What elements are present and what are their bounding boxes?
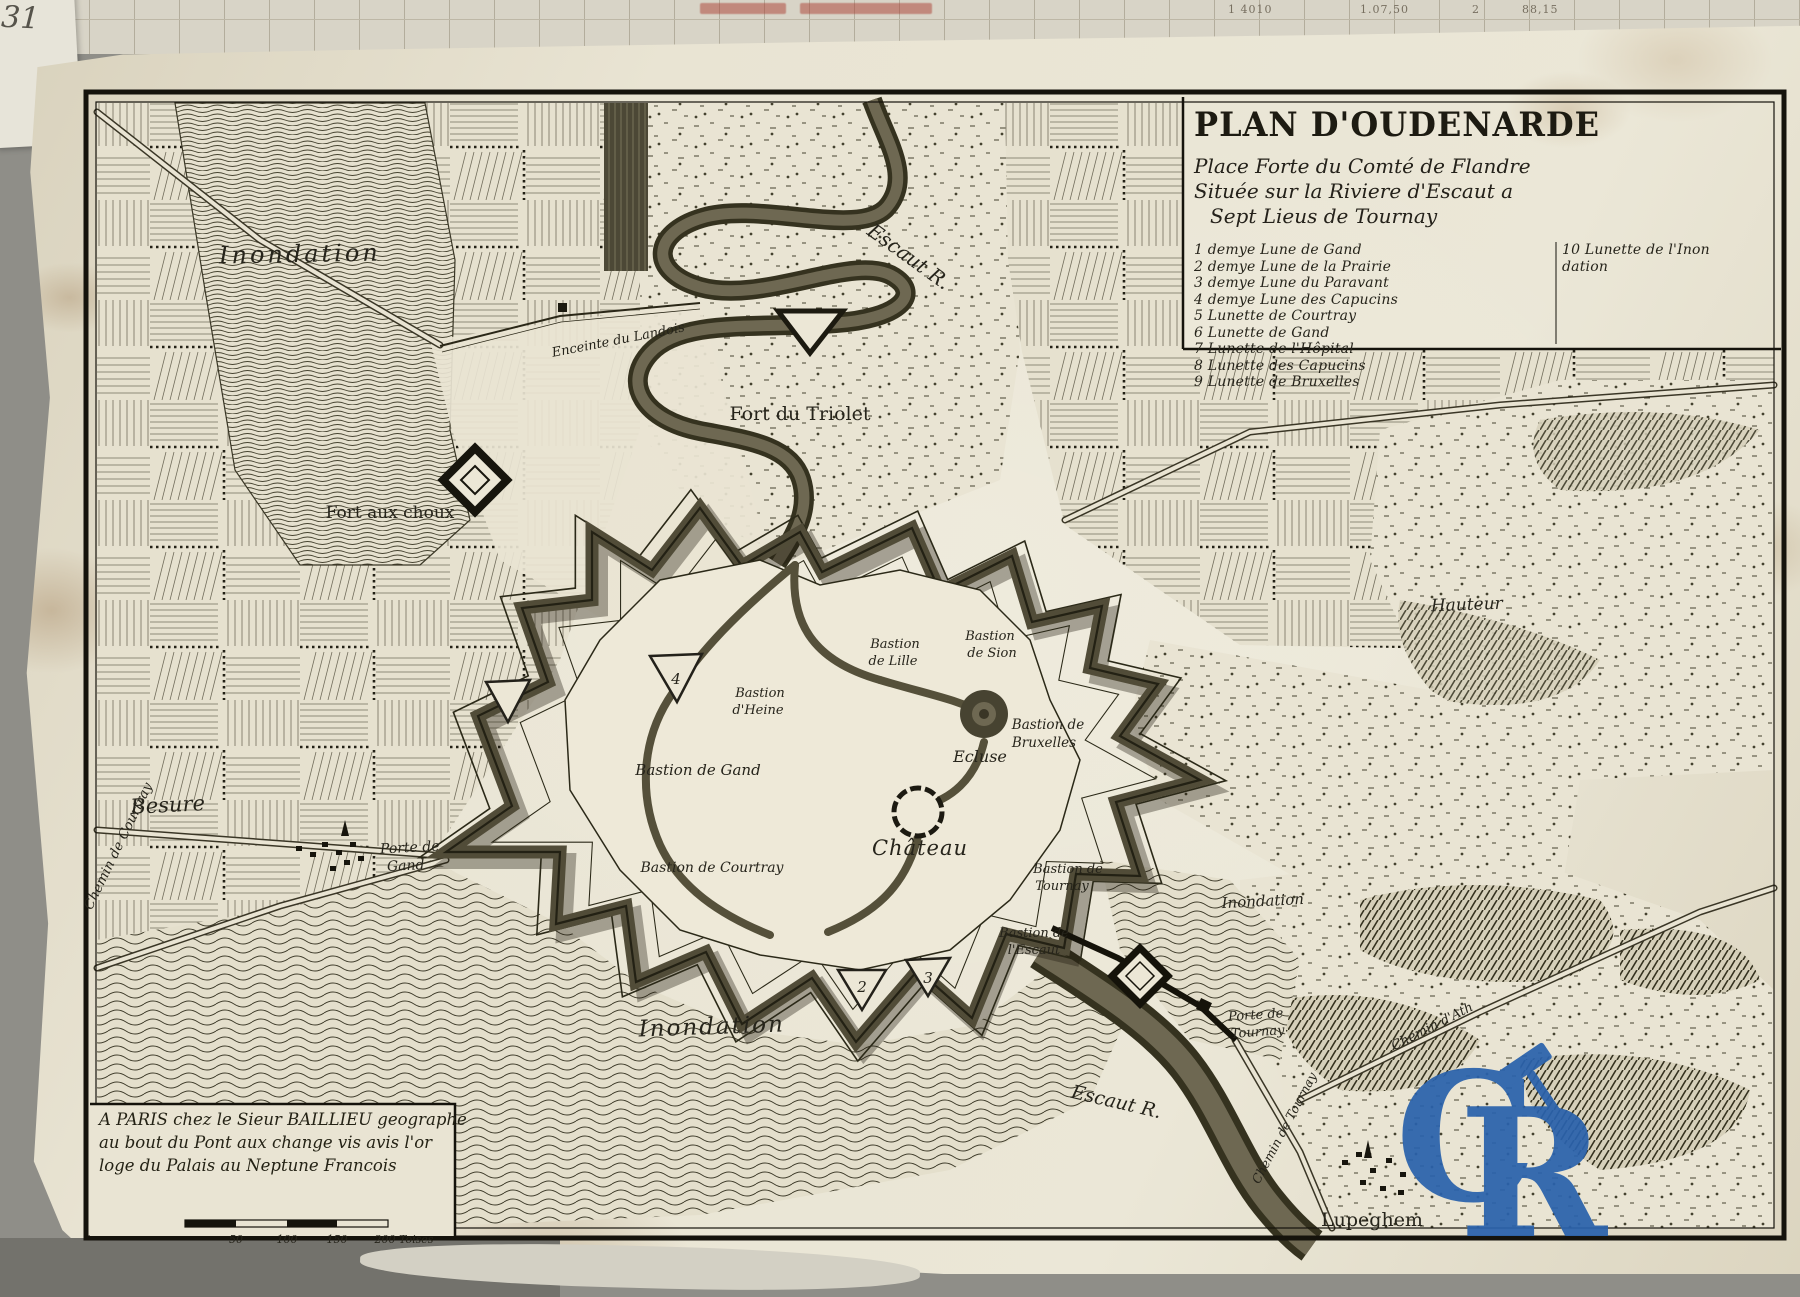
title-cartouche: PLAN D'OUDENARDE Place Forte du Comté de… bbox=[1194, 104, 1778, 391]
photo-of-antique-map: 1 4010 1.07,50 2 88,15 31 bbox=[0, 0, 1800, 1297]
label-bastion-de-sion: de Sion bbox=[967, 646, 1016, 661]
label-fort-aux-choux: Fort aux choux bbox=[326, 503, 455, 523]
label-bastion-de-sion: Bastion bbox=[964, 629, 1015, 644]
legend-item: 5 Lunette de Courtray bbox=[1194, 308, 1546, 325]
map-title: PLAN D'OUDENARDE bbox=[1194, 104, 1778, 144]
legend-item: 10 Lunette de l'Inon bbox=[1562, 242, 1752, 259]
legend-item: 3 demye Lune du Paravant bbox=[1194, 275, 1546, 292]
scale-tick-100: 100 bbox=[277, 1233, 298, 1246]
marker-4: 4 bbox=[670, 670, 681, 688]
legend-item: 8 Lunette des Capucins bbox=[1194, 358, 1546, 375]
scale-tick-200-toises: 200 Toises bbox=[374, 1233, 434, 1246]
map-subtitle-line: Place Forte du Comté de Flandre bbox=[1194, 154, 1778, 179]
imprint-line: au bout du Pont aux change vis avis l'or bbox=[99, 1131, 451, 1154]
label-bastion-de-gand: Bastion de Gand bbox=[634, 761, 760, 779]
label-bastion-de-courtray: Bastion de Courtray bbox=[640, 860, 785, 876]
legend-column-right: 10 Lunette de l'Inon dation bbox=[1546, 242, 1752, 391]
label-porte-de-gand: Porte de bbox=[379, 838, 440, 857]
legend-item: 2 demye Lune de la Prairie bbox=[1194, 259, 1546, 276]
legend-item: 4 demye Lune des Capucins bbox=[1194, 292, 1546, 309]
label-bastion-de-lille: Bastion bbox=[869, 637, 920, 652]
label-bastion-de-l-escaut: Bastion de bbox=[998, 926, 1069, 941]
legend: 1 demye Lune de Gand 2 demye Lune de la … bbox=[1194, 242, 1778, 391]
map-subtitle-line: Située sur la Riviere d'Escaut a bbox=[1194, 179, 1778, 204]
imprint-line: loge du Palais au Neptune Francois bbox=[99, 1154, 451, 1177]
legend-item: 6 Lunette de Gand bbox=[1194, 325, 1546, 342]
scale-tick-150: 150 bbox=[327, 1233, 348, 1246]
label-bastion-d-heine: d'Heine bbox=[732, 703, 783, 718]
label-chateau: Château bbox=[872, 836, 968, 860]
legend-item: 7 Lunette de l'Hôpital bbox=[1194, 341, 1546, 358]
label-fort-du-triolet: Fort du Triolet bbox=[729, 403, 870, 425]
label-ecluse: Ecluse bbox=[952, 747, 1007, 766]
cr-auction-watermark: C R bbox=[1395, 1035, 1655, 1255]
label-bastion-de-tournay: Tournay bbox=[1035, 879, 1089, 894]
label-bastion-de-tournay: Bastion de bbox=[1032, 862, 1103, 877]
label-bastion-de-lille: de Lille bbox=[869, 654, 918, 669]
legend-item: 1 demye Lune de Gand bbox=[1194, 242, 1546, 259]
label-porte-de-gand: Gand bbox=[387, 857, 425, 875]
imprint-line: A PARIS chez le Sieur BAILLIEU geographe bbox=[99, 1108, 451, 1131]
ecluse-sluice-pond bbox=[960, 690, 1008, 738]
marker-2: 2 bbox=[856, 978, 867, 996]
label-bastion-d-heine: Bastion bbox=[734, 686, 785, 701]
chateau-citadel bbox=[894, 788, 942, 836]
label-inondation-south: Inondation bbox=[637, 1011, 785, 1042]
legend-column-left: 1 demye Lune de Gand 2 demye Lune de la … bbox=[1194, 242, 1546, 391]
legend-item: 9 Lunette de Bruxelles bbox=[1194, 374, 1546, 391]
label-escaut-river-bottom: Escaut R. bbox=[1068, 1081, 1163, 1123]
marker-3: 3 bbox=[923, 969, 933, 987]
label-hauteur: Hauteur bbox=[1430, 594, 1504, 617]
map-subtitle-line: Sept Lieus de Tournay bbox=[1194, 204, 1778, 229]
label-bastion-de-bruxelles: Bruxelles bbox=[1011, 735, 1076, 751]
legend-item: dation bbox=[1562, 259, 1752, 276]
label-inondation-nw: Inondation bbox=[218, 239, 381, 270]
imprint-cartouche: A PARIS chez le Sieur BAILLIEU geographe… bbox=[99, 1108, 451, 1177]
scale-tick-50: 50 bbox=[229, 1233, 243, 1246]
label-bastion-de-bruxelles: Bastion de bbox=[1011, 717, 1084, 733]
label-bastion-de-l-escaut: l'Escaut bbox=[1008, 943, 1061, 958]
